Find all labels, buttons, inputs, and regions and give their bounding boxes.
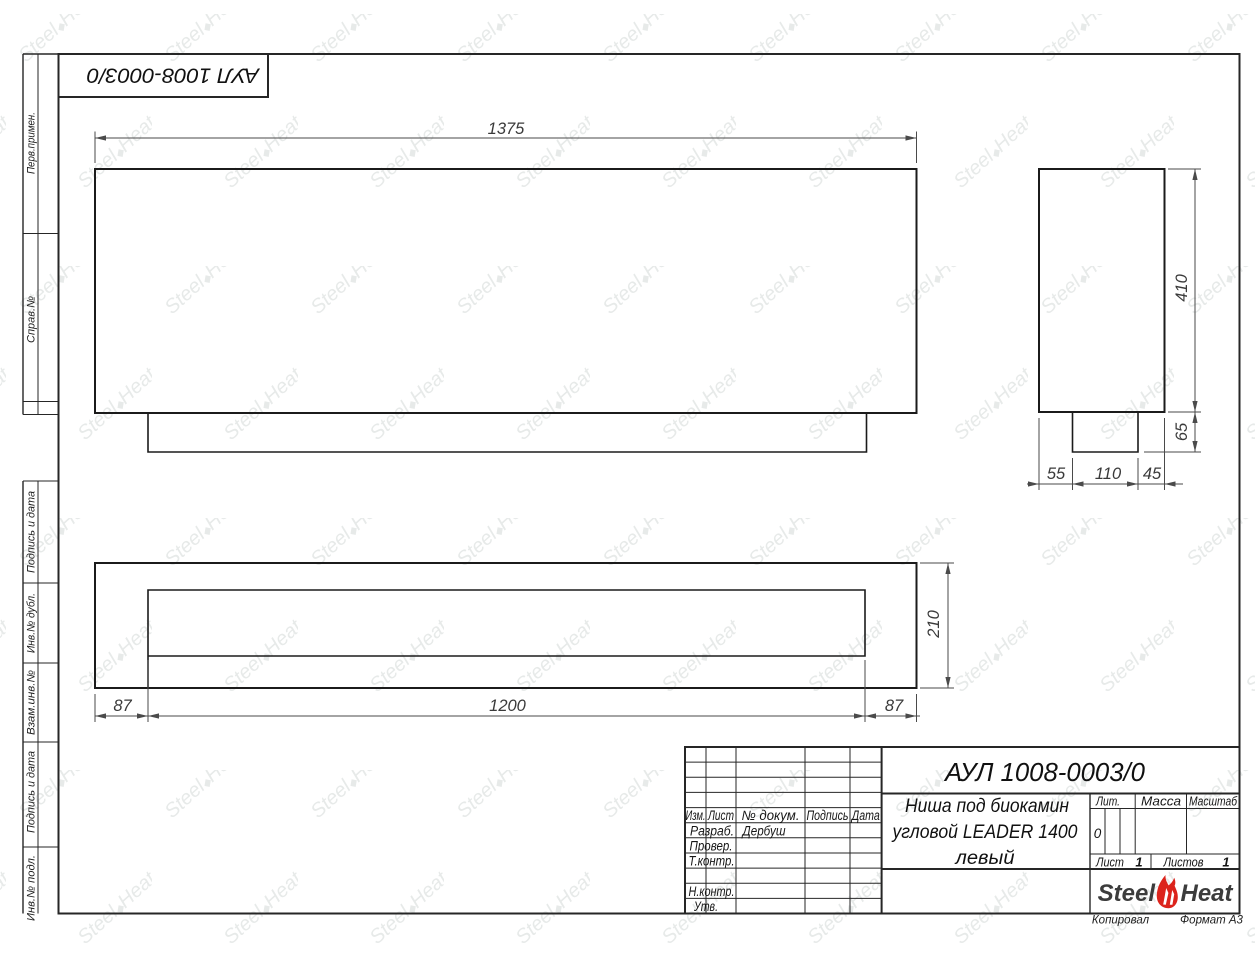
- svg-text:Дербуш: Дербуш: [741, 824, 786, 839]
- svg-text:Разраб.: Разраб.: [690, 824, 734, 839]
- svg-text:Подпись: Подпись: [807, 808, 849, 823]
- svg-text:Формат А3: Формат А3: [1180, 915, 1244, 927]
- svg-text:Справ.№: Справ.№: [26, 296, 38, 343]
- svg-text:110: 110: [1095, 465, 1122, 483]
- svg-text:Утв.: Утв.: [693, 899, 718, 914]
- svg-text:Взам.инв.№: Взам.инв.№: [26, 670, 38, 735]
- svg-text:Подпись и дата: Подпись и дата: [26, 491, 38, 573]
- svg-text:1: 1: [1222, 855, 1229, 870]
- svg-text:Лист: Лист: [1095, 855, 1124, 870]
- svg-text:Т.контр.: Т.контр.: [689, 854, 735, 869]
- svg-text:№ докум.: № докум.: [742, 808, 800, 823]
- svg-text:Листов: Листов: [1163, 855, 1204, 870]
- svg-text:55: 55: [1047, 465, 1066, 483]
- svg-text:АУЛ 1008-0003/0: АУЛ 1008-0003/0: [87, 64, 261, 87]
- svg-text:410: 410: [1173, 273, 1191, 301]
- svg-text:Провер.: Провер.: [690, 839, 733, 854]
- svg-text:Копировал: Копировал: [1092, 915, 1150, 927]
- svg-text:45: 45: [1143, 465, 1162, 483]
- svg-text:Ниша под биокамин: Ниша под биокамин: [905, 795, 1069, 817]
- svg-text:Лист: Лист: [707, 808, 734, 823]
- svg-text:Изм.: Изм.: [686, 808, 706, 823]
- svg-text:Инв.№ подл.: Инв.№ подл.: [26, 855, 38, 921]
- svg-text:левый: левый: [954, 847, 1014, 869]
- svg-text:Подпись и дата: Подпись и дата: [26, 751, 38, 833]
- svg-text:Масса: Масса: [1141, 794, 1181, 809]
- svg-text:1: 1: [1135, 855, 1142, 870]
- svg-text:Лит.: Лит.: [1095, 794, 1120, 809]
- svg-text:210: 210: [925, 609, 943, 638]
- svg-text:Масштаб: Масштаб: [1189, 794, 1238, 809]
- svg-text:АУЛ 1008-0003/0: АУЛ 1008-0003/0: [943, 757, 1146, 787]
- svg-text:Heat: Heat: [1181, 880, 1234, 907]
- svg-text:Инв.№ дубл.: Инв.№ дубл.: [26, 593, 38, 653]
- svg-text:Дата: Дата: [850, 808, 880, 823]
- svg-text:65: 65: [1173, 422, 1191, 441]
- svg-text:1200: 1200: [489, 697, 527, 715]
- svg-text:87: 87: [113, 697, 132, 715]
- svg-text:0: 0: [1094, 826, 1102, 841]
- svg-text:Н.контр.: Н.контр.: [689, 884, 735, 899]
- svg-text:1375: 1375: [488, 120, 526, 138]
- svg-text:Steel: Steel: [1098, 880, 1157, 907]
- svg-text:Перв.примен.: Перв.примен.: [26, 112, 38, 174]
- svg-text:угловой LEADER 1400: угловой LEADER 1400: [891, 821, 1078, 843]
- svg-text:87: 87: [885, 697, 904, 715]
